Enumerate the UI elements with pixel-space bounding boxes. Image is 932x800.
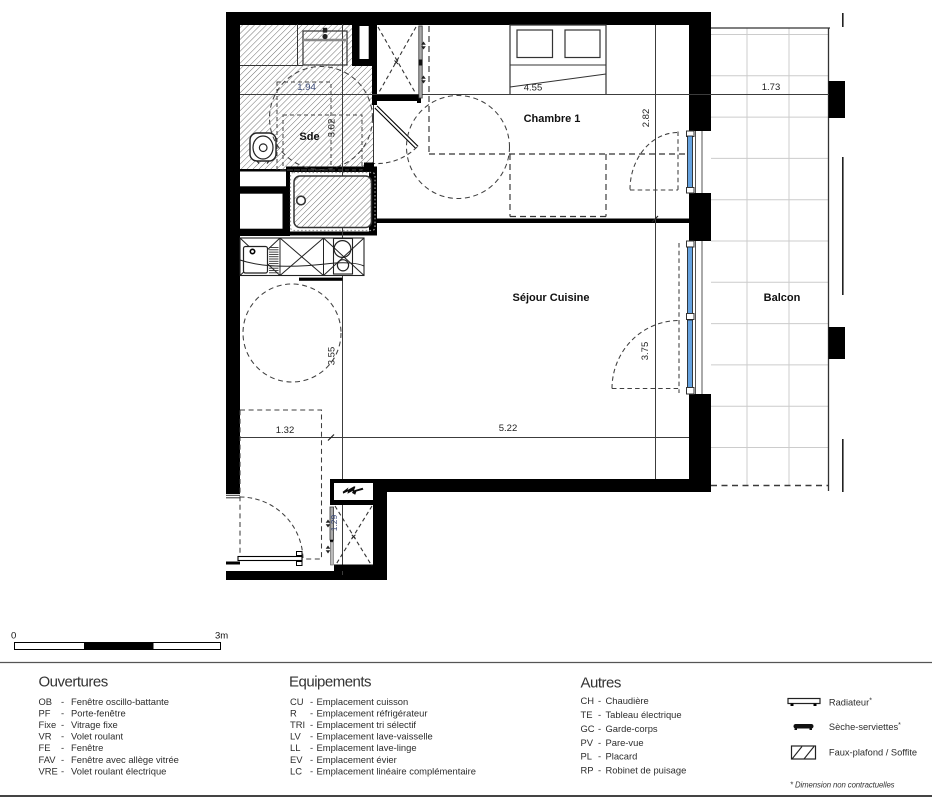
svg-text:Robinet de puisage: Robinet de puisage [606, 765, 687, 776]
svg-text:-: - [310, 719, 313, 730]
svg-text:-: - [61, 742, 64, 753]
svg-text:Garde-corps: Garde-corps [606, 723, 658, 734]
svg-text:CH: CH [581, 695, 595, 706]
svg-text:VRE: VRE [39, 765, 58, 776]
svg-text:Emplacement évier: Emplacement évier [317, 754, 397, 765]
svg-text:Emplacement réfrigérateur: Emplacement réfrigérateur [317, 708, 428, 719]
svg-text:Séjour Cuisine: Séjour Cuisine [512, 292, 589, 304]
svg-text:-: - [598, 737, 601, 748]
svg-text:3m: 3m [215, 631, 228, 642]
svg-text:-: - [61, 708, 64, 719]
svg-text:LC: LC [290, 765, 302, 776]
svg-text:2.82: 2.82 [641, 109, 652, 128]
svg-text:1.32: 1.32 [276, 425, 295, 436]
svg-text:Tableau électrique: Tableau électrique [606, 709, 682, 720]
svg-text:CU: CU [290, 696, 304, 707]
svg-text:RP: RP [581, 765, 594, 776]
svg-text:R: R [290, 708, 297, 719]
svg-text:Emplacement lave-vaisselle: Emplacement lave-vaisselle [317, 731, 433, 742]
svg-text:Ouvertures: Ouvertures [39, 674, 108, 691]
svg-text:Autres: Autres [581, 675, 621, 692]
svg-text:5.22: 5.22 [499, 423, 518, 434]
svg-text:1.29: 1.29 [329, 514, 339, 531]
svg-text:PF: PF [39, 708, 51, 719]
svg-text:TRI: TRI [290, 719, 305, 730]
svg-text:FE: FE [39, 742, 51, 753]
svg-text:PL: PL [581, 751, 592, 762]
svg-text:* Dimension non contractuelles: * Dimension non contractuelles [790, 781, 895, 790]
svg-text:3.75: 3.75 [640, 342, 651, 361]
svg-text:-: - [61, 719, 64, 730]
svg-text:TE: TE [581, 709, 593, 720]
svg-text:OB: OB [39, 696, 53, 707]
svg-text:Radiateur*: Radiateur* [829, 698, 872, 708]
svg-text:Volet roulant: Volet roulant [71, 731, 124, 742]
svg-text:-: - [310, 696, 313, 707]
svg-text:Placard: Placard [606, 751, 638, 762]
svg-text:-: - [598, 695, 601, 706]
svg-text:-: - [310, 731, 313, 742]
svg-text:-: - [310, 765, 313, 776]
svg-text:3.55: 3.55 [327, 347, 338, 366]
svg-text:Emplacement tri sélectif: Emplacement tri sélectif [317, 719, 417, 730]
svg-text:GC: GC [581, 723, 595, 734]
svg-text:-: - [598, 751, 601, 762]
svg-text:Fixe: Fixe [39, 719, 57, 730]
svg-text:Fenêtre: Fenêtre [71, 742, 103, 753]
svg-text:VR: VR [39, 731, 52, 742]
svg-text:Porte-fenêtre: Porte-fenêtre [71, 708, 126, 719]
svg-text:-: - [310, 708, 313, 719]
svg-text:Vitrage fixe: Vitrage fixe [71, 719, 118, 730]
svg-text:Equipements: Equipements [289, 674, 371, 691]
svg-text:3.02: 3.02 [327, 119, 338, 138]
svg-text:-: - [598, 709, 601, 720]
svg-text:EV: EV [290, 754, 303, 765]
svg-text:-: - [61, 696, 64, 707]
svg-text:Emplacement linéaire complémen: Emplacement linéaire complémentaire [317, 765, 476, 776]
svg-text:Chaudière: Chaudière [606, 695, 649, 706]
svg-text:Fenêtre avec allège vitrée: Fenêtre avec allège vitrée [71, 754, 179, 765]
svg-text:Faux-plafond / Soffite: Faux-plafond / Soffite [829, 748, 917, 758]
svg-text:Emplacement cuisson: Emplacement cuisson [317, 696, 409, 707]
svg-text:LV: LV [290, 731, 302, 742]
svg-text:-: - [310, 754, 313, 765]
svg-text:Pare-vue: Pare-vue [606, 737, 644, 748]
svg-text:-: - [598, 723, 601, 734]
svg-text:FAV: FAV [39, 754, 57, 765]
svg-text:Balcon: Balcon [764, 292, 801, 304]
svg-text:-: - [310, 742, 313, 753]
svg-text:1.73: 1.73 [762, 82, 781, 93]
svg-text:Chambre 1: Chambre 1 [524, 113, 581, 125]
svg-text:Sèche-serviettes*: Sèche-serviettes* [829, 722, 901, 732]
svg-text:-: - [61, 754, 64, 765]
svg-text:Fenêtre oscillo-battante: Fenêtre oscillo-battante [71, 696, 169, 707]
svg-text:Sde: Sde [299, 131, 319, 143]
svg-text:-: - [61, 765, 64, 776]
svg-text:0: 0 [11, 631, 16, 642]
svg-text:-: - [598, 765, 601, 776]
svg-text:1.94: 1.94 [297, 82, 316, 93]
svg-text:PV: PV [581, 737, 594, 748]
svg-text:4.55: 4.55 [524, 83, 543, 94]
svg-text:LL: LL [290, 742, 300, 753]
svg-text:Volet roulant électrique: Volet roulant électrique [71, 765, 166, 776]
svg-text:-: - [61, 731, 64, 742]
svg-text:Emplacement lave-linge: Emplacement lave-linge [317, 742, 417, 753]
